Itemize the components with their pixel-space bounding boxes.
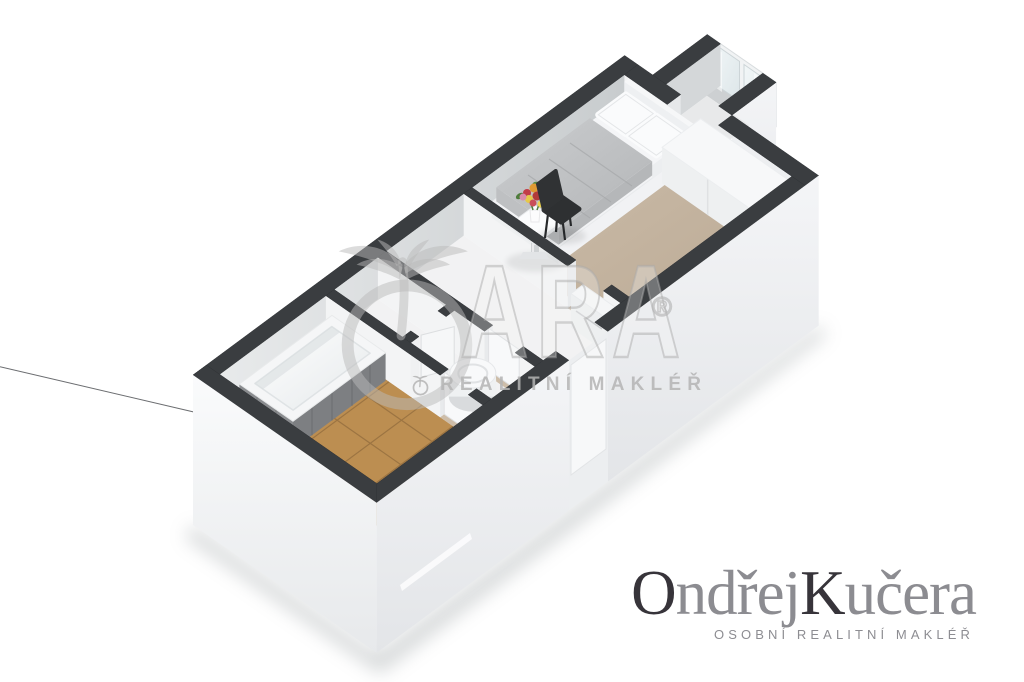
first-name-rest: ndřej xyxy=(676,558,800,628)
vase xyxy=(530,210,540,222)
last-name-initial: K xyxy=(800,558,845,628)
agent-logo: OndřejKučera OSOBNÍ REALITNÍ MAKLÉŘ xyxy=(616,560,976,642)
floor-plan-page: ARA ® REALITNÍ MAKLÉŘ OndřejKučera OSOBN… xyxy=(0,0,1024,682)
last-name-rest: učera xyxy=(845,558,976,628)
agent-tagline: OSOBNÍ REALITNÍ MAKLÉŘ xyxy=(616,627,976,642)
first-name-initial: O xyxy=(631,558,676,628)
agent-name: OndřejKučera xyxy=(616,560,976,626)
